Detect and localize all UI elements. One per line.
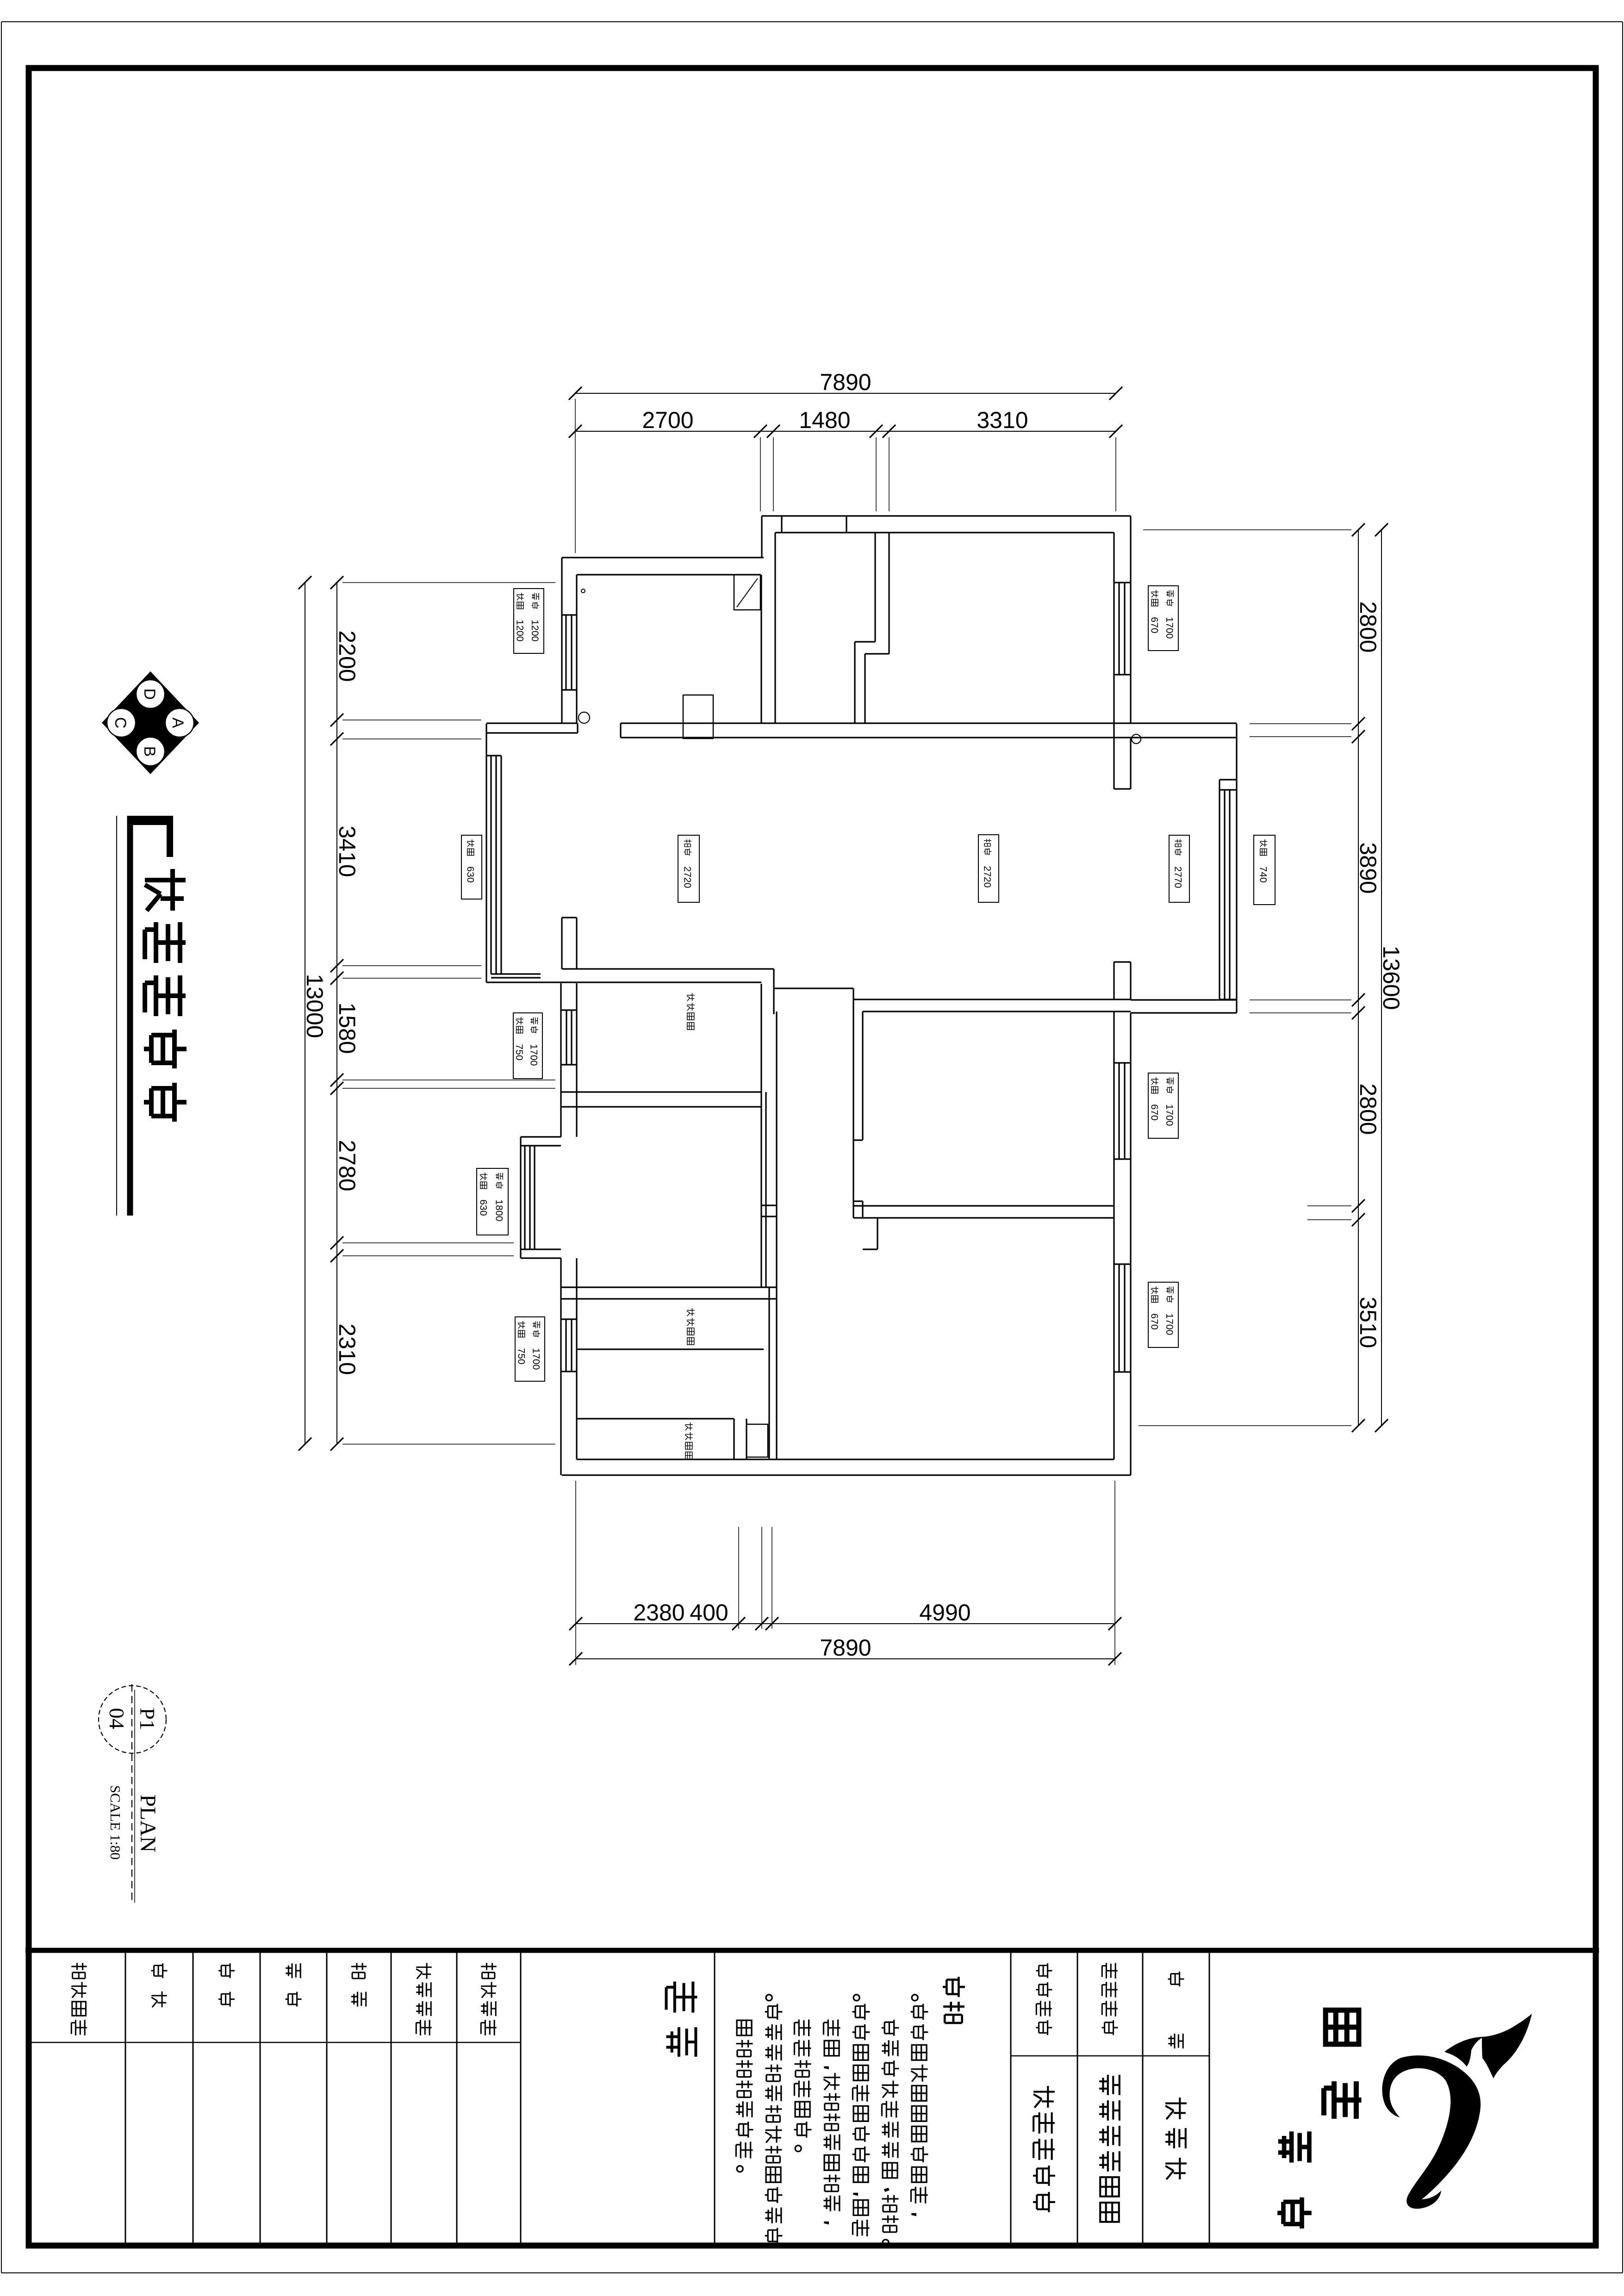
svg-text:13600: 13600 [1378,945,1404,1010]
svg-text:3310: 3310 [977,407,1028,433]
svg-text:2310: 2310 [334,1323,360,1375]
svg-text:A: A [169,718,187,728]
svg-text:C: C [112,717,129,729]
svg-text:1700: 1700 [1164,1104,1175,1126]
svg-text:2700: 2700 [642,407,693,433]
svg-text:3410: 3410 [334,825,360,877]
svg-text:630: 630 [465,866,475,882]
svg-text:1580: 1580 [334,1002,360,1054]
svg-text:7890: 7890 [820,369,871,395]
svg-text:B: B [141,746,158,757]
svg-text:SCALE 1:80: SCALE 1:80 [107,1785,124,1860]
svg-text:670: 670 [1149,1313,1160,1329]
svg-text:3510: 3510 [1355,1297,1381,1348]
svg-text:7890: 7890 [820,1635,871,1661]
svg-text:630: 630 [478,1199,488,1216]
svg-text:670: 670 [1149,1104,1160,1120]
svg-text:750: 750 [516,1348,526,1364]
svg-text:4990: 4990 [919,1600,971,1626]
svg-text:13000: 13000 [302,974,328,1038]
svg-text:1480: 1480 [799,407,850,433]
svg-text:400: 400 [690,1600,728,1626]
svg-text:P1: P1 [136,1708,159,1731]
svg-text:2800: 2800 [1355,601,1381,652]
svg-text:2770: 2770 [1172,866,1183,888]
svg-text:1700: 1700 [1164,1313,1175,1335]
svg-text:740: 740 [1257,866,1268,882]
svg-text:750: 750 [514,1044,524,1060]
svg-text:670: 670 [1149,617,1160,633]
svg-text:2800: 2800 [1355,1083,1381,1135]
svg-text:2380: 2380 [633,1600,684,1626]
svg-text:2720: 2720 [682,866,692,888]
svg-text:PLAN: PLAN [136,1794,160,1852]
svg-text:1200: 1200 [515,620,525,641]
svg-text:1800: 1800 [493,1199,504,1221]
svg-text:2720: 2720 [982,866,992,887]
svg-text:04: 04 [105,1708,129,1729]
svg-text:3890: 3890 [1355,842,1381,894]
svg-text:D: D [141,689,158,700]
svg-text:2200: 2200 [334,630,360,682]
svg-text:1700: 1700 [1164,617,1175,639]
svg-text:1700: 1700 [530,1348,541,1370]
svg-text:1200: 1200 [529,620,540,641]
svg-text:2780: 2780 [334,1140,360,1191]
svg-text:1700: 1700 [529,1044,539,1066]
